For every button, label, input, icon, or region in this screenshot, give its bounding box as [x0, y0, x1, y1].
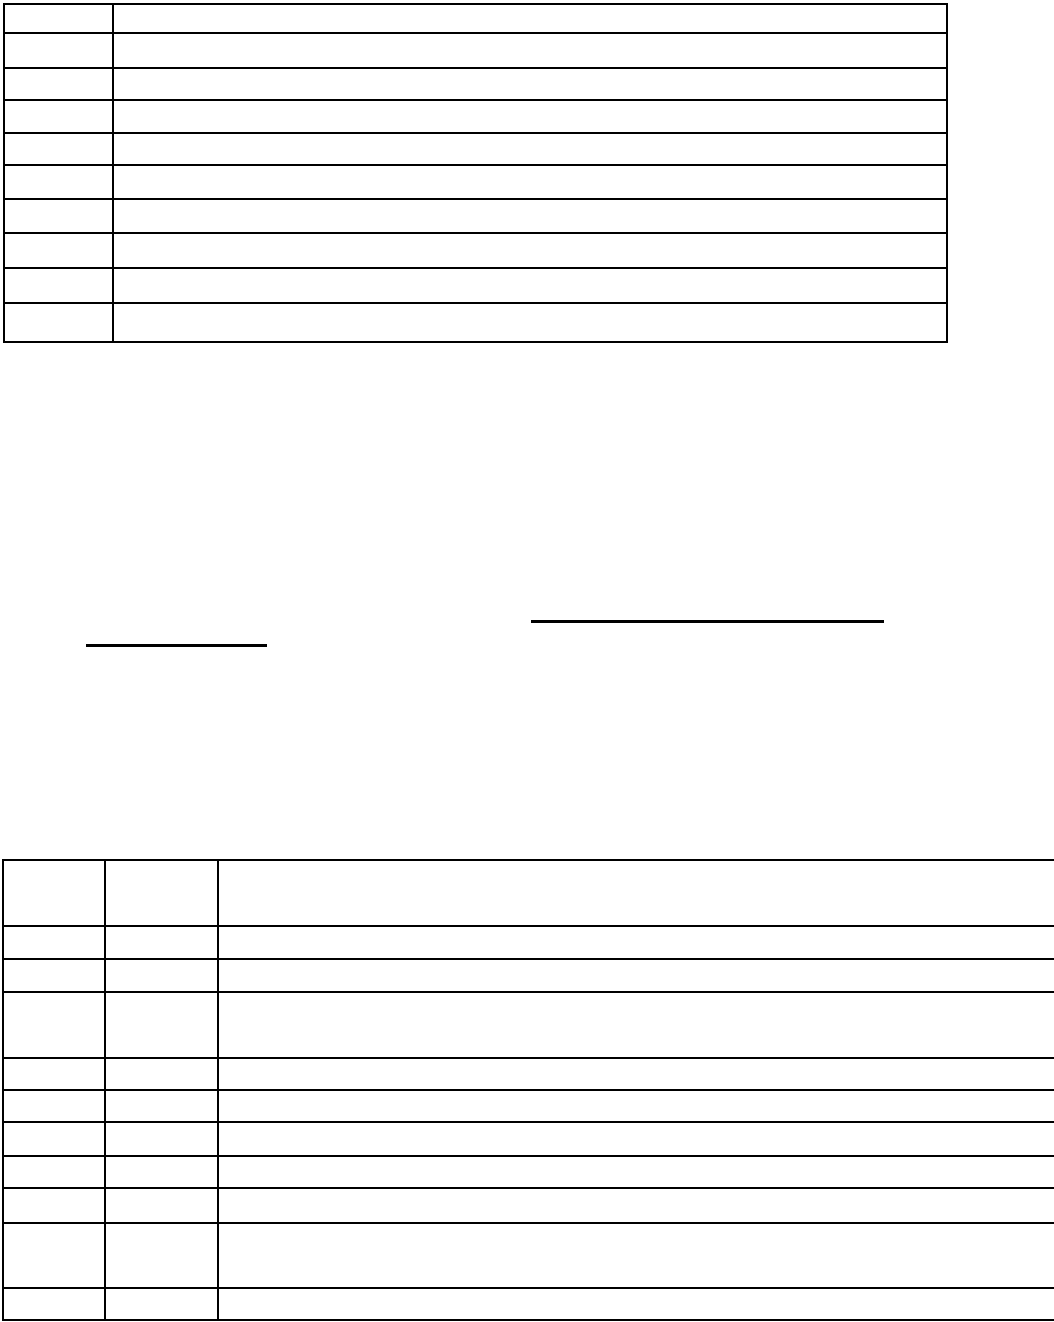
table-cell	[105, 1090, 218, 1122]
table-cell	[113, 4, 947, 33]
table-row	[3, 1288, 1054, 1320]
table-cell	[105, 926, 218, 959]
table-cell	[113, 303, 947, 342]
table-cell	[4, 4, 113, 33]
table-cell	[3, 860, 105, 926]
table-cell	[4, 233, 113, 268]
table-cell	[113, 233, 947, 268]
table-cell	[4, 33, 113, 68]
table-cell	[218, 1223, 1054, 1288]
table-cell	[218, 860, 1054, 926]
table-row	[4, 100, 947, 133]
table-cell	[3, 1156, 105, 1188]
table-cell	[218, 1090, 1054, 1122]
table-cell	[105, 1288, 218, 1320]
table-cell	[3, 1223, 105, 1288]
table-cell	[3, 1122, 105, 1156]
table-cell	[218, 992, 1054, 1058]
table-row	[3, 1090, 1054, 1122]
table-cell	[113, 33, 947, 68]
table-cell	[105, 1058, 218, 1090]
table-row	[3, 1156, 1054, 1188]
table-row	[3, 959, 1054, 992]
table-cell	[105, 1122, 218, 1156]
table-row	[4, 33, 947, 68]
table-cell	[218, 926, 1054, 959]
table-cell	[113, 100, 947, 133]
table-cell	[113, 199, 947, 233]
table-cell	[4, 268, 113, 303]
table-cell	[3, 1188, 105, 1223]
table-row	[3, 1223, 1054, 1288]
table-cell	[113, 133, 947, 165]
table-cell	[4, 133, 113, 165]
table-row	[3, 926, 1054, 959]
table-cell	[4, 68, 113, 100]
table-cell	[3, 926, 105, 959]
top-form-table	[3, 3, 948, 343]
table-row	[3, 860, 1054, 926]
table-row	[4, 199, 947, 233]
blank-underline-short	[86, 644, 267, 647]
table-cell	[3, 1058, 105, 1090]
table-cell	[105, 1188, 218, 1223]
table-cell	[3, 1288, 105, 1320]
table-cell	[218, 1288, 1054, 1320]
table-cell	[113, 68, 947, 100]
table-cell	[218, 1122, 1054, 1156]
table-cell	[3, 992, 105, 1058]
table-row	[4, 4, 947, 33]
table-row	[4, 165, 947, 199]
blank-underline-long	[531, 620, 884, 623]
table-row	[4, 133, 947, 165]
table-cell	[218, 1188, 1054, 1223]
document-page: { "page": { "width_px": 1054, "height_px…	[0, 0, 1054, 1322]
table-cell	[105, 860, 218, 926]
table-cell	[218, 959, 1054, 992]
table-row	[4, 268, 947, 303]
table-cell	[218, 1156, 1054, 1188]
table-row	[3, 992, 1054, 1058]
table-cell	[3, 1090, 105, 1122]
table-cell	[3, 959, 105, 992]
table-cell	[113, 268, 947, 303]
table-cell	[105, 1156, 218, 1188]
table-row	[3, 1058, 1054, 1090]
table-row	[4, 303, 947, 342]
table-cell	[4, 100, 113, 133]
table-cell	[4, 199, 113, 233]
table-cell	[105, 959, 218, 992]
bottom-form-table	[2, 859, 1054, 1321]
table-cell	[4, 165, 113, 199]
table-row	[4, 233, 947, 268]
table-row	[3, 1188, 1054, 1223]
table-row	[4, 68, 947, 100]
table-cell	[105, 1223, 218, 1288]
table-cell	[113, 165, 947, 199]
table-cell	[218, 1058, 1054, 1090]
table-cell	[105, 992, 218, 1058]
table-cell	[4, 303, 113, 342]
table-row	[3, 1122, 1054, 1156]
